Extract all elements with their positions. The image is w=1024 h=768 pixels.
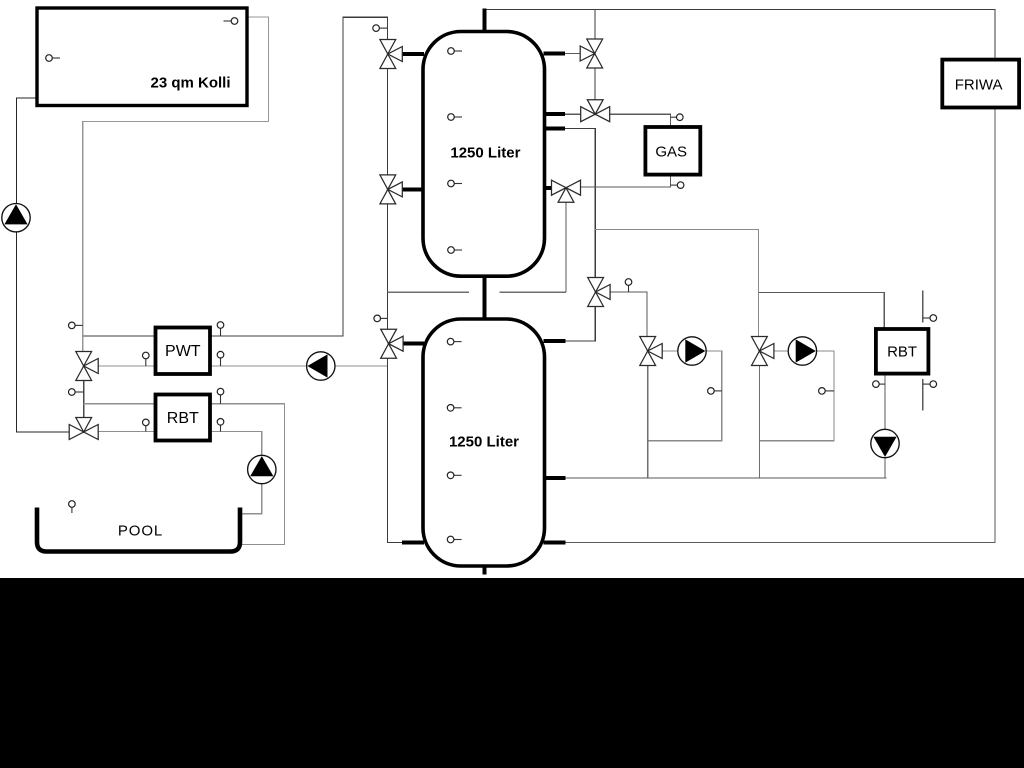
svg-text:1250 Liter: 1250 Liter: [450, 144, 520, 161]
svg-text:RBT: RBT: [167, 410, 199, 427]
svg-text:RBT: RBT: [887, 344, 917, 361]
svg-text:FRIWA: FRIWA: [955, 76, 1003, 93]
svg-text:GAS: GAS: [655, 144, 687, 161]
svg-text:PWT: PWT: [165, 343, 201, 360]
svg-text:1250 Liter: 1250 Liter: [449, 433, 519, 450]
svg-text:POOL: POOL: [118, 522, 163, 539]
svg-text:23 qm Kolli: 23 qm Kolli: [150, 74, 230, 91]
